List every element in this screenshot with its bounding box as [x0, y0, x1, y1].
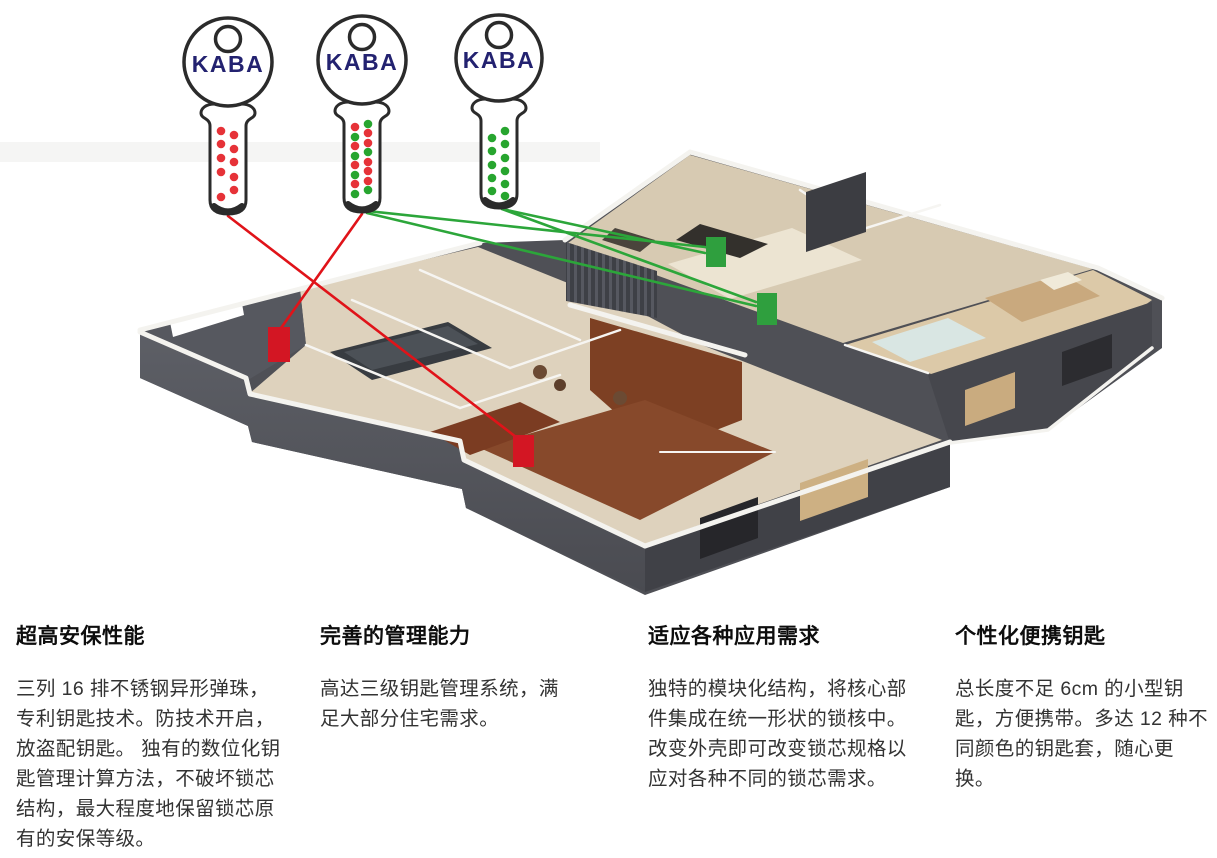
key-dot-red	[364, 167, 373, 176]
key-dot-green	[351, 190, 360, 199]
feature-security: 超高安保性能 三列 16 排不锈钢异形弹珠，专利钥匙技术。防技术开启，放盗配钥匙…	[16, 620, 288, 854]
key-dot-red	[230, 186, 239, 195]
lock-marker-red-1	[268, 327, 290, 362]
lock-marker-red-2	[513, 435, 534, 467]
page: KABAKABAKABA 超高安保性能 三列 16 排不锈钢异形弹珠，专利钥匙技…	[0, 0, 1217, 858]
key-dot-red	[230, 131, 239, 140]
key-dot-green	[488, 147, 497, 156]
kaba-logo-label: KABA	[463, 47, 535, 73]
feature-body: 独特的模块化结构，将核心部件集成在统一形状的锁核中。改变外壳即可改变锁芯规格以应…	[648, 674, 922, 794]
lock-marker-green-2	[757, 293, 777, 325]
key-system-diagram: KABAKABAKABA	[0, 0, 1217, 620]
feature-body: 三列 16 排不锈钢异形弹珠，专利钥匙技术。防技术开启，放盗配钥匙。 独有的数位…	[16, 674, 288, 854]
key-dot-green	[364, 186, 373, 195]
key-dot-green	[501, 180, 510, 189]
house-illustration	[140, 152, 1162, 595]
key-dot-red	[364, 129, 373, 138]
feature-body: 高达三级钥匙管理系统，满足大部分住宅需求。	[320, 674, 578, 734]
key-dot-green	[501, 167, 510, 176]
key-dot-red	[217, 168, 226, 177]
key-dot-green	[501, 127, 510, 136]
key-master-icon: KABA	[318, 16, 406, 212]
kaba-logo-label: KABA	[326, 49, 398, 75]
key-dot-red	[351, 161, 360, 170]
kaba-logo-label: KABA	[192, 51, 264, 77]
key-dot-green	[351, 152, 360, 161]
feature-title: 适应各种应用需求	[648, 620, 922, 650]
key-dot-green	[488, 134, 497, 143]
key-dot-green	[488, 187, 497, 196]
key-dot-red	[230, 145, 239, 154]
key-dot-green	[364, 148, 373, 157]
key-dot-green	[501, 140, 510, 149]
key-dot-green	[364, 120, 373, 129]
feature-management: 完善的管理能力 高达三级钥匙管理系统，满足大部分住宅需求。	[320, 620, 578, 734]
key-dot-red	[230, 173, 239, 182]
key-dot-red	[217, 154, 226, 163]
key-red-icon: KABA	[184, 18, 272, 214]
key-dot-green	[501, 154, 510, 163]
key-dot-red	[364, 158, 373, 167]
key-dot-green	[351, 133, 360, 142]
key-dot-red	[217, 127, 226, 136]
feature-title: 完善的管理能力	[320, 620, 578, 650]
feature-title: 个性化便携钥匙	[955, 620, 1209, 650]
key-dot-green	[351, 171, 360, 180]
lock-marker-green-1	[706, 237, 726, 267]
key-dot-red	[351, 180, 360, 189]
feature-title: 超高安保性能	[16, 620, 288, 650]
feature-applications: 适应各种应用需求 独特的模块化结构，将核心部件集成在统一形状的锁核中。改变外壳即…	[648, 620, 922, 794]
key-dot-green	[488, 174, 497, 183]
key-dot-red	[364, 139, 373, 148]
feature-portability: 个性化便携钥匙 总长度不足 6cm 的小型钥匙，方便携带。多达 12 种不同颜色…	[955, 620, 1209, 794]
key-dot-red	[217, 193, 226, 202]
key-dot-red	[351, 142, 360, 151]
feature-body: 总长度不足 6cm 的小型钥匙，方便携带。多达 12 种不同颜色的钥匙套，随心更…	[955, 674, 1209, 794]
key-dot-red	[364, 177, 373, 186]
key-dot-green	[488, 161, 497, 170]
key-dot-green	[501, 192, 510, 201]
key-dot-red	[217, 140, 226, 149]
key-dot-red	[230, 158, 239, 167]
key-dot-red	[351, 123, 360, 132]
key-green-icon: KABA	[456, 15, 542, 208]
